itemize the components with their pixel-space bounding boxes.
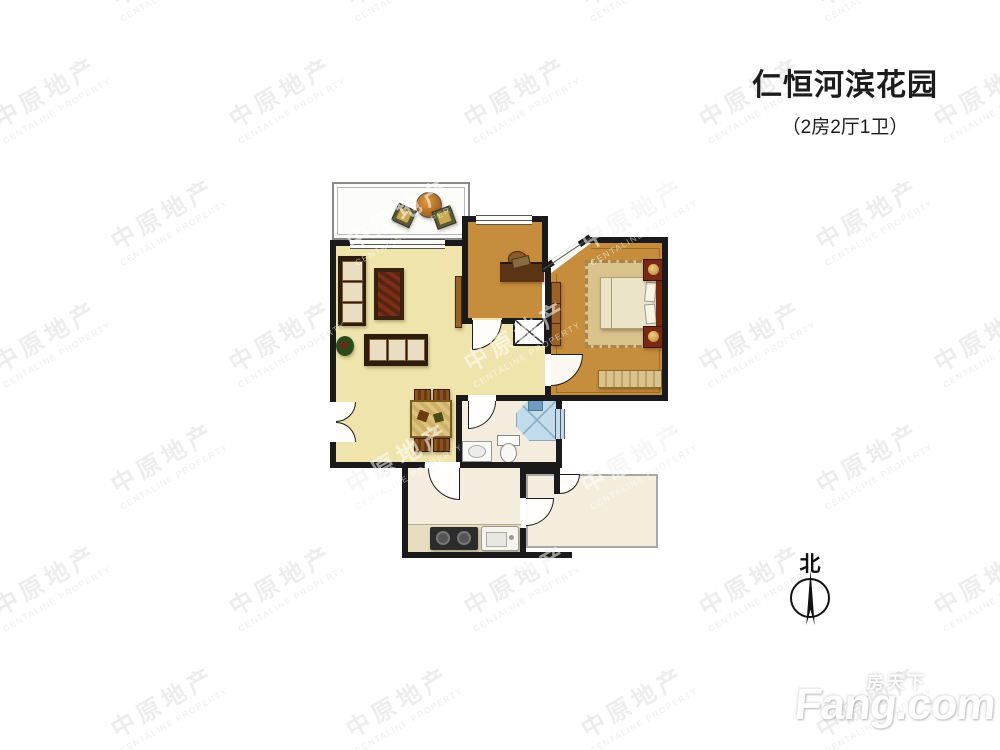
watermark: 中原地产CENTALINE PROPERTY — [789, 401, 951, 521]
wall-segment — [496, 395, 668, 401]
dining-chair — [414, 438, 431, 452]
sink-basin — [468, 445, 486, 458]
table-decor — [433, 412, 444, 423]
stove-burner — [436, 531, 450, 545]
wall-segment — [586, 237, 668, 243]
page-title: 仁恒河滨花园 — [715, 60, 975, 104]
table-decor — [417, 410, 430, 423]
wall-segment — [462, 318, 472, 324]
tv-cabinet — [455, 276, 462, 328]
watermark: 中原地产CENTALINE PROPERTY — [84, 645, 246, 750]
dining-chair — [433, 438, 450, 452]
shower-head — [528, 400, 543, 411]
wall-segment — [502, 318, 514, 324]
logo-text-en: Fang.com — [792, 680, 997, 730]
floor-plan-page: 中原地产CENTALINE PROPERTY中原地产CENTALINE PROP… — [0, 0, 1000, 750]
sofa-cushion — [369, 339, 387, 361]
sofa-bottom — [364, 334, 428, 366]
coffee-table-top — [378, 272, 400, 316]
bed-blanket-line — [611, 278, 612, 328]
window-bathroom — [555, 409, 565, 439]
watermark: 中原地产CENTALINE PROPERTY — [0, 401, 11, 521]
sofa-left — [338, 256, 366, 326]
bed — [600, 277, 660, 329]
title-block: 仁恒河滨花园 （2房2厅1卫） — [715, 60, 975, 139]
desk — [500, 262, 544, 282]
wall-segment — [545, 268, 551, 354]
watermark: 中原地产CENTALINE PROPERTY — [202, 35, 364, 155]
wall-segment — [662, 237, 668, 401]
sofa-cushion — [407, 339, 425, 361]
watermark: 中原地产CENTALINE PROPERTY — [319, 645, 481, 750]
closet — [513, 318, 546, 346]
watermark: 中原地产CENTALINE PROPERTY — [84, 157, 246, 277]
kitchen-sink — [481, 526, 519, 551]
wall-segment — [330, 240, 336, 402]
nightstand-lamp — [648, 264, 659, 275]
nightstand-lamp — [648, 331, 659, 342]
watermark: 中原地产CENTALINE PROPERTY — [84, 401, 246, 521]
watermark: 中原地产CENTALINE PROPERTY — [789, 0, 951, 33]
watermark: 中原地产CENTALINE PROPERTY — [0, 157, 11, 277]
wall-segment — [520, 528, 526, 558]
watermark: 中原地产CENTALINE PROPERTY — [672, 279, 834, 399]
watermark: 中原地产CENTALINE PROPERTY — [907, 279, 1000, 399]
north-label: 北 — [775, 548, 845, 578]
watermark: 中原地产CENTALINE PROPERTY — [319, 0, 481, 33]
watermark: 中原地产CENTALINE PROPERTY — [0, 0, 11, 33]
watermark: 中原地产CENTALINE PROPERTY — [0, 35, 129, 155]
chair-cushion — [396, 208, 412, 223]
watermark: 中原地产CENTALINE PROPERTY — [0, 279, 129, 399]
page-subtitle: （2房2厅1卫） — [715, 112, 975, 139]
watermark: 中原地产CENTALINE PROPERTY — [0, 645, 11, 750]
bathroom-sink — [462, 441, 492, 462]
sofa-cushion — [342, 303, 363, 323]
sink-basin — [486, 532, 507, 547]
watermark: 中原地产CENTALINE PROPERTY — [0, 523, 129, 643]
watermark: 中原地产CENTALINE PROPERTY — [907, 523, 1000, 643]
sofa-cushion — [388, 339, 406, 361]
watermark: 中原地产CENTALINE PROPERTY — [672, 279, 675, 399]
watermark: 中原地产CENTALINE PROPERTY — [330, 523, 364, 570]
wall-segment — [402, 468, 408, 558]
fang-logo: 房天下 Fang.com — [795, 668, 1000, 748]
wall-segment — [556, 438, 562, 462]
watermark: 中原地产CENTALINE PROPERTY — [789, 157, 951, 277]
wall-segment — [456, 401, 462, 462]
wall-segment — [402, 552, 572, 558]
dresser — [598, 370, 662, 388]
wall-segment — [330, 462, 425, 468]
floor-plan: 中原地产CENTALINE PROPERTY中原地产CENTALINE PROP… — [330, 180, 675, 570]
north-compass: 北 — [775, 548, 845, 632]
plant — [336, 336, 354, 356]
window-study — [476, 215, 532, 225]
watermark: 中原地产CENTALINE PROPERTY — [437, 35, 599, 155]
wardrobe — [551, 282, 561, 346]
window-living — [350, 239, 445, 249]
stove-burner — [457, 531, 471, 545]
wall-segment — [330, 240, 352, 246]
watermark: 中原地产CENTALINE PROPERTY — [84, 0, 246, 33]
sofa-cushion — [342, 261, 363, 281]
stove — [430, 527, 478, 550]
faucet — [509, 535, 514, 540]
watermark: 中原地产CENTALINE PROPERTY — [672, 523, 675, 570]
watermark: 中原地产CENTALINE PROPERTY — [554, 645, 716, 750]
sofa-cushion — [342, 282, 363, 302]
chair-cushion — [436, 210, 451, 224]
coffee-table — [374, 268, 404, 320]
dining-table — [410, 400, 452, 438]
wall-segment — [462, 222, 468, 318]
toilet-bowl — [500, 443, 517, 463]
wall-segment — [554, 468, 560, 494]
watermark: 中原地产CENTALINE PROPERTY — [554, 0, 716, 33]
